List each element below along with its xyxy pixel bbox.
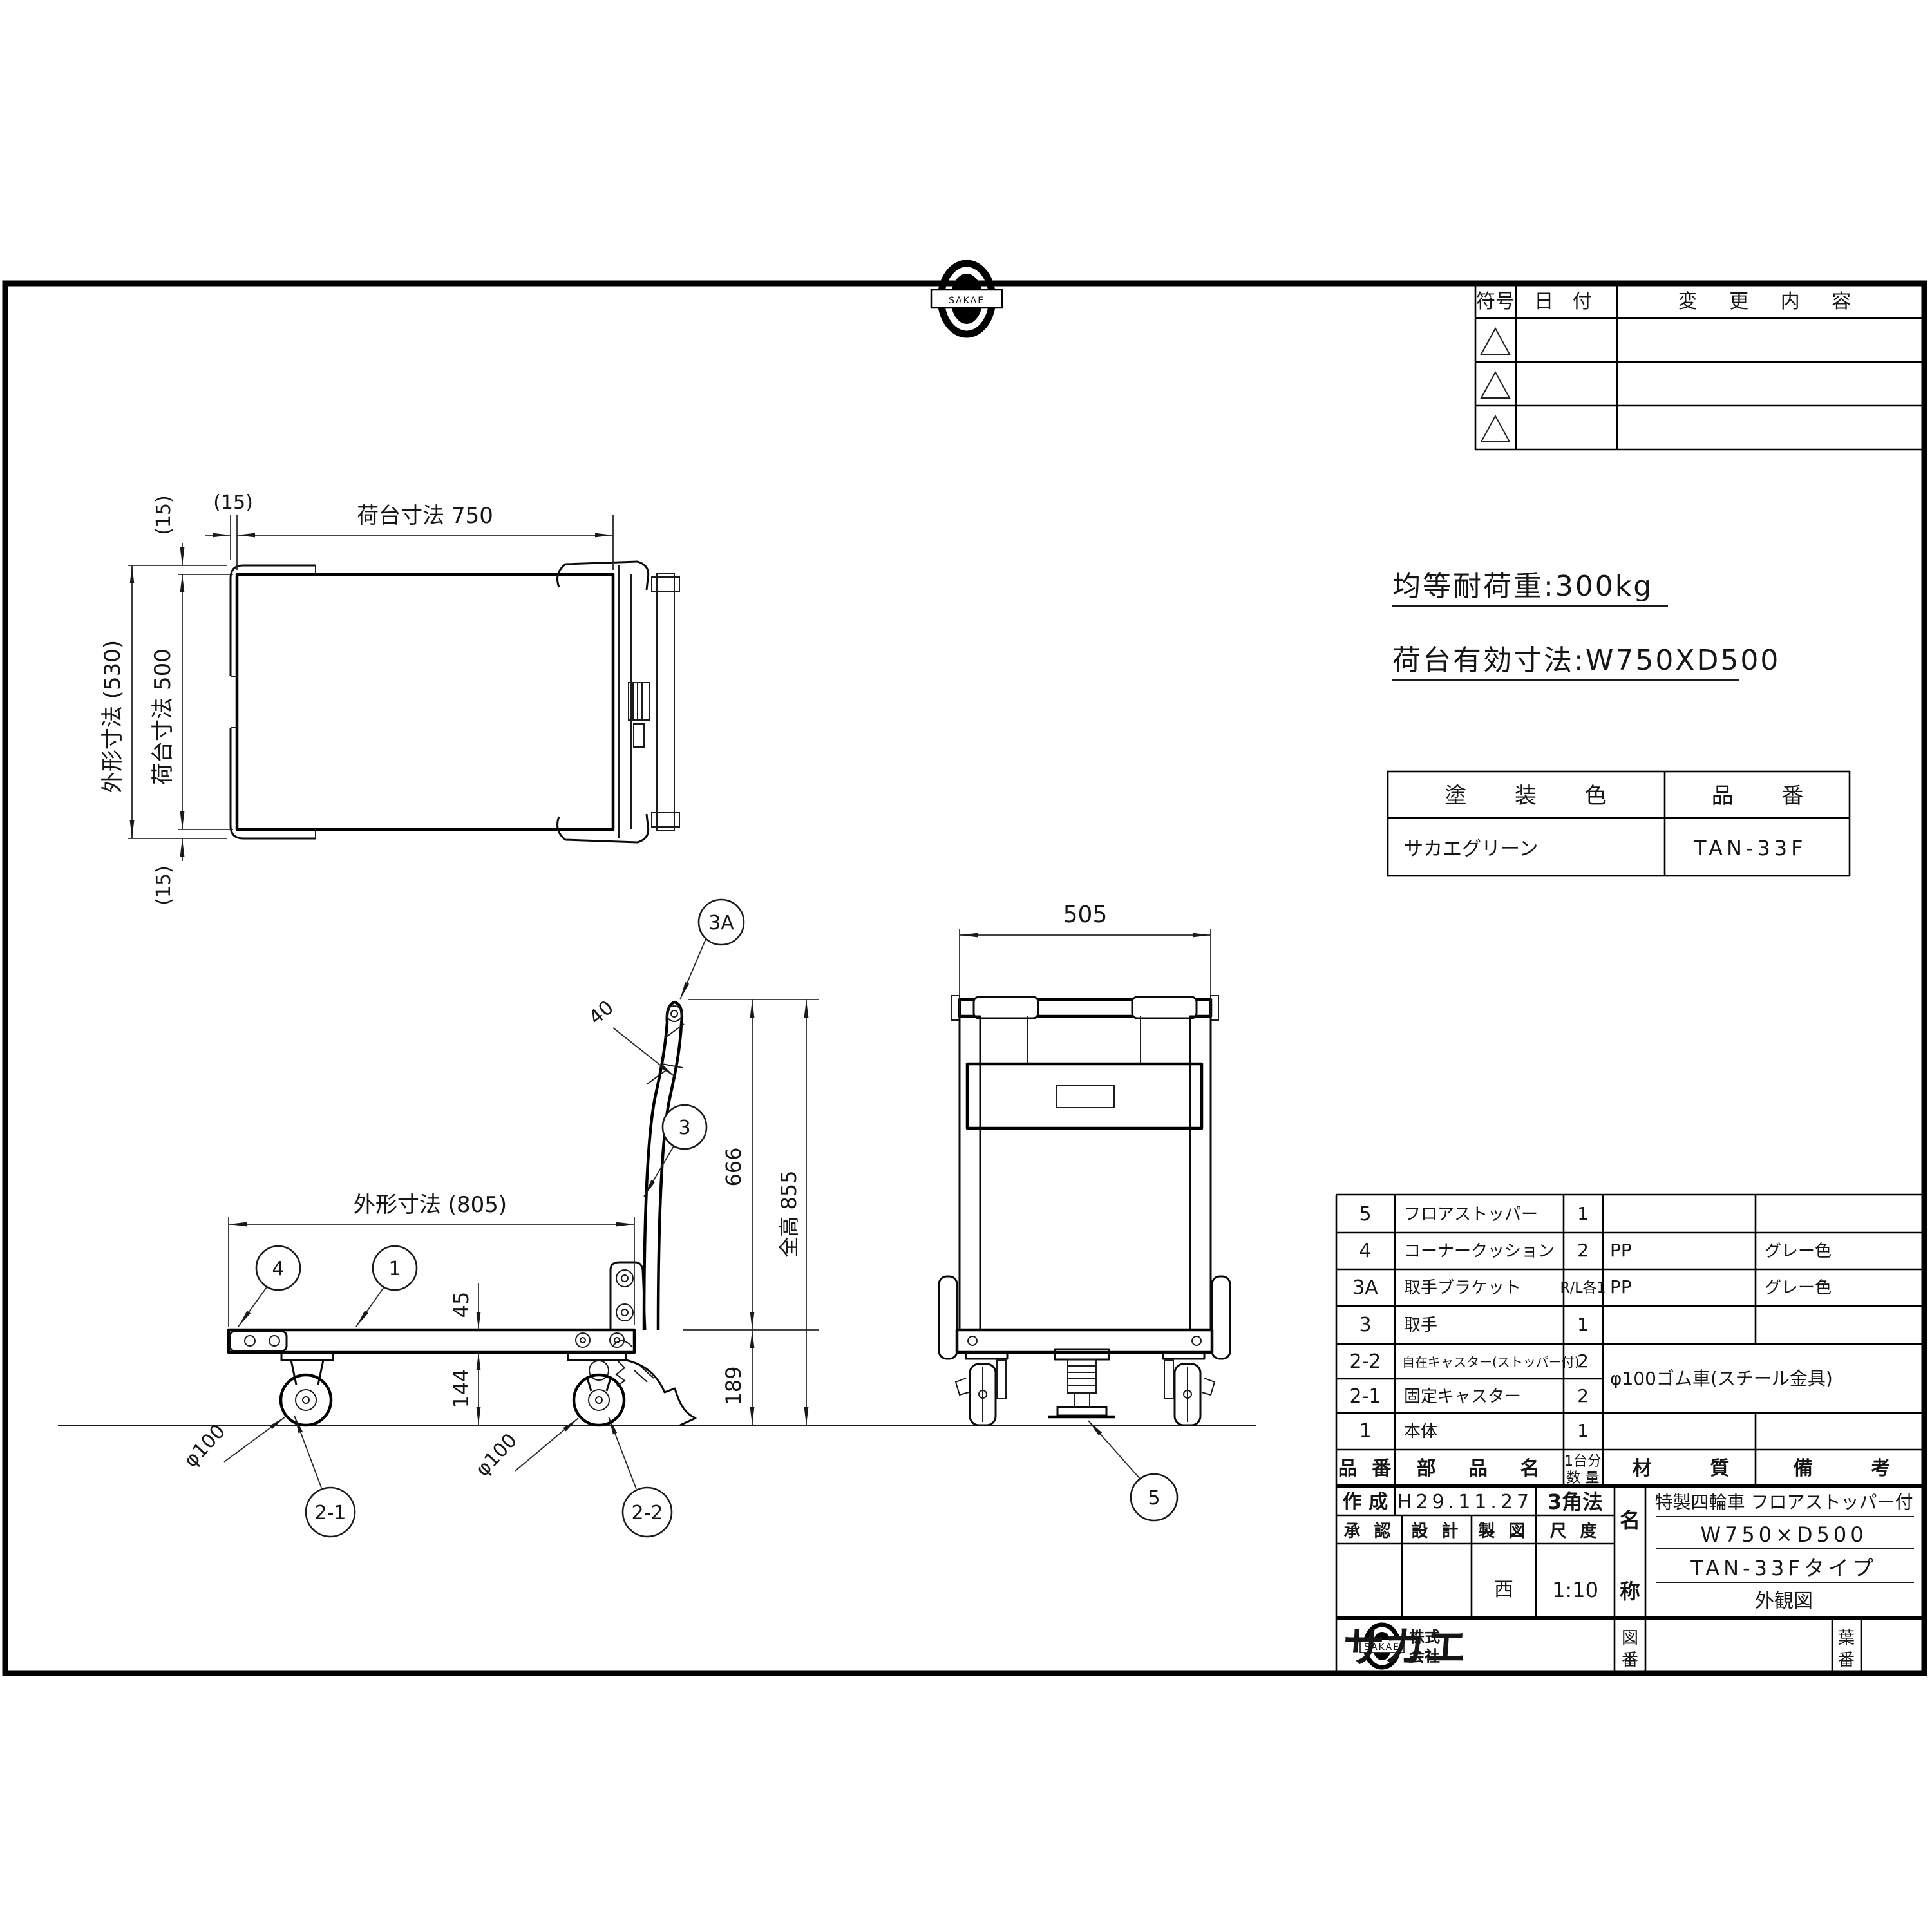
revision-triangle-2 bbox=[1481, 372, 1510, 398]
balloon-2-2-label: 2-2 bbox=[632, 1502, 663, 1524]
name-label-top: 名 bbox=[1620, 1508, 1640, 1533]
part-qty: R/L各1 bbox=[1560, 1280, 1606, 1296]
created-date: H29.11.27 bbox=[1397, 1491, 1533, 1513]
cushion-top-left bbox=[231, 565, 316, 676]
side-view-front-caster bbox=[281, 1352, 333, 1425]
front-view-left-caster bbox=[956, 1352, 1007, 1425]
parts-header-remarks: 備 考 bbox=[1794, 1457, 1916, 1480]
created-label: 作 成 bbox=[1343, 1491, 1388, 1513]
front-view-floor-stopper bbox=[1048, 1349, 1115, 1417]
part-name: 取手ブラケット bbox=[1404, 1278, 1521, 1298]
product-type: TAN-33Fタイプ bbox=[1690, 1556, 1877, 1580]
part-material-merged: φ100ゴム車(スチール金具) bbox=[1610, 1368, 1833, 1389]
part-no: 1 bbox=[1359, 1420, 1371, 1443]
sakae-top-logo: SAKAE bbox=[931, 263, 1002, 334]
parts-header-no: 品 番 bbox=[1338, 1457, 1395, 1480]
spec-capacity: 均等耐荷重:300kg bbox=[1392, 570, 1653, 603]
part-qty: 1 bbox=[1577, 1314, 1589, 1335]
drawing-sheet: SAKAE 符号 日 付 変 更 内 容 均等耐荷重:300kg 荷台有効寸法:… bbox=[0, 0, 1932, 1932]
part-name: 取手 bbox=[1404, 1316, 1437, 1335]
engineering-drawing: SAKAE 符号 日 付 変 更 内 容 均等耐荷重:300kg 荷台有効寸法:… bbox=[0, 0, 1932, 1932]
parts-header-name: 部 品 名 bbox=[1417, 1457, 1553, 1480]
dim-15-bottom-label: (15) bbox=[153, 866, 175, 905]
balloon-5-label: 5 bbox=[1148, 1487, 1160, 1510]
projection-method: 3角法 bbox=[1548, 1490, 1603, 1514]
part-qty: 2 bbox=[1577, 1240, 1589, 1261]
side-view-rear-caster bbox=[568, 1352, 696, 1425]
side-view-deck bbox=[229, 1330, 634, 1352]
revision-triangle-3 bbox=[1481, 416, 1510, 442]
spec-notes: 均等耐荷重:300kg 荷台有効寸法:W750XD500 bbox=[1392, 570, 1780, 680]
front-view-right-caster bbox=[1163, 1352, 1215, 1425]
part-name: コーナークッション bbox=[1404, 1242, 1555, 1261]
spec-deck-size: 荷台有効寸法:W750XD500 bbox=[1392, 644, 1780, 677]
dim-phi100-front: φ100 bbox=[180, 1420, 230, 1472]
dim-500-label: 荷台寸法 500 bbox=[150, 649, 176, 785]
parts-header-qty2: 数 量 bbox=[1567, 1470, 1600, 1486]
balloon-2-1-label: 2-1 bbox=[315, 1502, 346, 1524]
revision-triangle-1 bbox=[1481, 328, 1510, 354]
dim-189-label: 189 bbox=[721, 1366, 746, 1405]
dim-45-label: 45 bbox=[449, 1292, 473, 1318]
part-name: 本体 bbox=[1404, 1422, 1437, 1441]
dim-phi100-rear: φ100 bbox=[471, 1429, 522, 1481]
sheet-no-label-bottom: 番 bbox=[1838, 1651, 1855, 1670]
cushion-bottom-left bbox=[231, 728, 316, 838]
draft-label: 製 図 bbox=[1478, 1522, 1529, 1541]
side-view: 外形寸法 (805) 45 144 666 189 全高 855 40 φ100… bbox=[180, 900, 819, 1537]
part-qty: 2 bbox=[1577, 1350, 1589, 1372]
revision-col-symbol: 符号 bbox=[1476, 290, 1515, 313]
paint-partno-value: TAN-33F bbox=[1693, 836, 1807, 860]
balloon-1-label: 1 bbox=[388, 1258, 401, 1280]
draft-signature: 西 bbox=[1494, 1578, 1513, 1601]
dim-855-label: 全高 855 bbox=[777, 1170, 801, 1257]
part-qty: 2 bbox=[1577, 1385, 1589, 1406]
top-view-dimensions: 荷台寸法 750 (15) 外形寸法 (530) 荷台寸法 500 (15) (… bbox=[100, 491, 613, 905]
front-view-left-cushion bbox=[939, 1276, 957, 1359]
dim-666-label: 666 bbox=[721, 1147, 746, 1186]
product-size: W750×D500 bbox=[1700, 1522, 1867, 1547]
design-label: 設 計 bbox=[1411, 1521, 1462, 1541]
dim-505-label: 505 bbox=[1063, 902, 1108, 928]
part-no: 3 bbox=[1359, 1314, 1371, 1336]
sakae-bottom-logo: SAKAE 株式 会社 サカエ bbox=[1341, 1624, 1468, 1672]
parts-rows: 5 フロアストッパー 1 4 コーナークッション 2 PP グレー色 3A 取手… bbox=[1350, 1203, 1833, 1443]
part-no: 2-1 bbox=[1350, 1385, 1381, 1408]
part-no: 2-2 bbox=[1350, 1350, 1381, 1373]
part-name: フロアストッパー bbox=[1404, 1205, 1538, 1224]
front-view-right-cushion bbox=[1212, 1276, 1230, 1359]
part-material: PP bbox=[1610, 1240, 1632, 1261]
top-view-deck bbox=[237, 574, 613, 829]
side-view-balloons: 3A 3 4 1 2-1 2-2 bbox=[238, 900, 744, 1537]
revision-table: 符号 日 付 変 更 内 容 bbox=[1475, 283, 1924, 450]
part-qty: 1 bbox=[1577, 1203, 1589, 1224]
part-name: 自在キャスター(ストッパー付) bbox=[1402, 1354, 1580, 1370]
title-block: 作 成 H29.11.27 3角法 承 認 設 計 製 図 尺 度 西 1:10… bbox=[1336, 1486, 1924, 1673]
logo-brand-text: SAKAE bbox=[949, 296, 985, 306]
dim-144-label: 144 bbox=[449, 1368, 473, 1408]
revision-col-date: 日 付 bbox=[1534, 290, 1598, 313]
parts-header: 品 番 部 品 名 1台分 数 量 材 質 備 考 bbox=[1338, 1454, 1916, 1486]
approved-label: 承 認 bbox=[1343, 1521, 1394, 1541]
side-view-dimensions: 外形寸法 (805) 45 144 666 189 全高 855 40 φ100… bbox=[180, 996, 819, 1481]
part-name: 固定キャスター bbox=[1404, 1387, 1521, 1406]
scale-label: 尺 度 bbox=[1549, 1521, 1600, 1541]
paint-header-partno: 品 番 bbox=[1712, 783, 1824, 809]
name-label-bottom: 称 bbox=[1620, 1579, 1640, 1604]
paint-table: 塗 装 色 品 番 サカエグリーン TAN-33F bbox=[1388, 772, 1850, 876]
drawing-kind: 外観図 bbox=[1755, 1590, 1813, 1613]
paint-header-color: 塗 装 色 bbox=[1444, 783, 1627, 809]
part-qty: 1 bbox=[1577, 1420, 1589, 1441]
scale-value: 1:10 bbox=[1552, 1578, 1598, 1602]
balloon-3a-label: 3A bbox=[708, 912, 734, 934]
revision-col-content: 変 更 内 容 bbox=[1678, 290, 1864, 313]
company-name: サカエ bbox=[1341, 1624, 1468, 1672]
part-no: 3A bbox=[1352, 1276, 1378, 1299]
parts-header-qty1: 1台分 bbox=[1564, 1454, 1602, 1470]
part-remarks: グレー色 bbox=[1765, 1242, 1832, 1261]
part-no: 5 bbox=[1359, 1203, 1371, 1226]
product-name: 特製四輪車 フロアストッパー付 bbox=[1655, 1492, 1913, 1513]
parts-header-material: 材 質 bbox=[1633, 1457, 1755, 1480]
sheet-no-label-top: 葉 bbox=[1838, 1629, 1855, 1648]
part-material: PP bbox=[1610, 1276, 1632, 1298]
part-remarks: グレー色 bbox=[1765, 1278, 1832, 1298]
top-view-folded-handle bbox=[619, 565, 679, 838]
front-view: 505 bbox=[939, 902, 1230, 1520]
dim-805-label: 外形寸法 (805) bbox=[354, 1192, 507, 1218]
top-view: 荷台寸法 750 (15) 外形寸法 (530) 荷台寸法 500 (15) (… bbox=[100, 491, 679, 905]
dim-750-label: 荷台寸法 750 bbox=[357, 503, 493, 529]
dim-15-left-label: (15) bbox=[213, 491, 253, 514]
balloon-4-label: 4 bbox=[272, 1258, 284, 1280]
part-no: 4 bbox=[1359, 1240, 1371, 1262]
dim-530-label: 外形寸法 (530) bbox=[100, 640, 126, 793]
dim-15-top-label: (15) bbox=[153, 495, 175, 535]
front-view-stopper-panel bbox=[967, 1064, 1202, 1128]
paint-color-value: サカエグリーン bbox=[1404, 838, 1539, 860]
fig-no-label-top: 図 bbox=[1622, 1629, 1638, 1648]
fig-no-label-bottom: 番 bbox=[1622, 1651, 1638, 1670]
dim-40-label: 40 bbox=[585, 996, 618, 1029]
balloon-3-label: 3 bbox=[678, 1117, 690, 1139]
